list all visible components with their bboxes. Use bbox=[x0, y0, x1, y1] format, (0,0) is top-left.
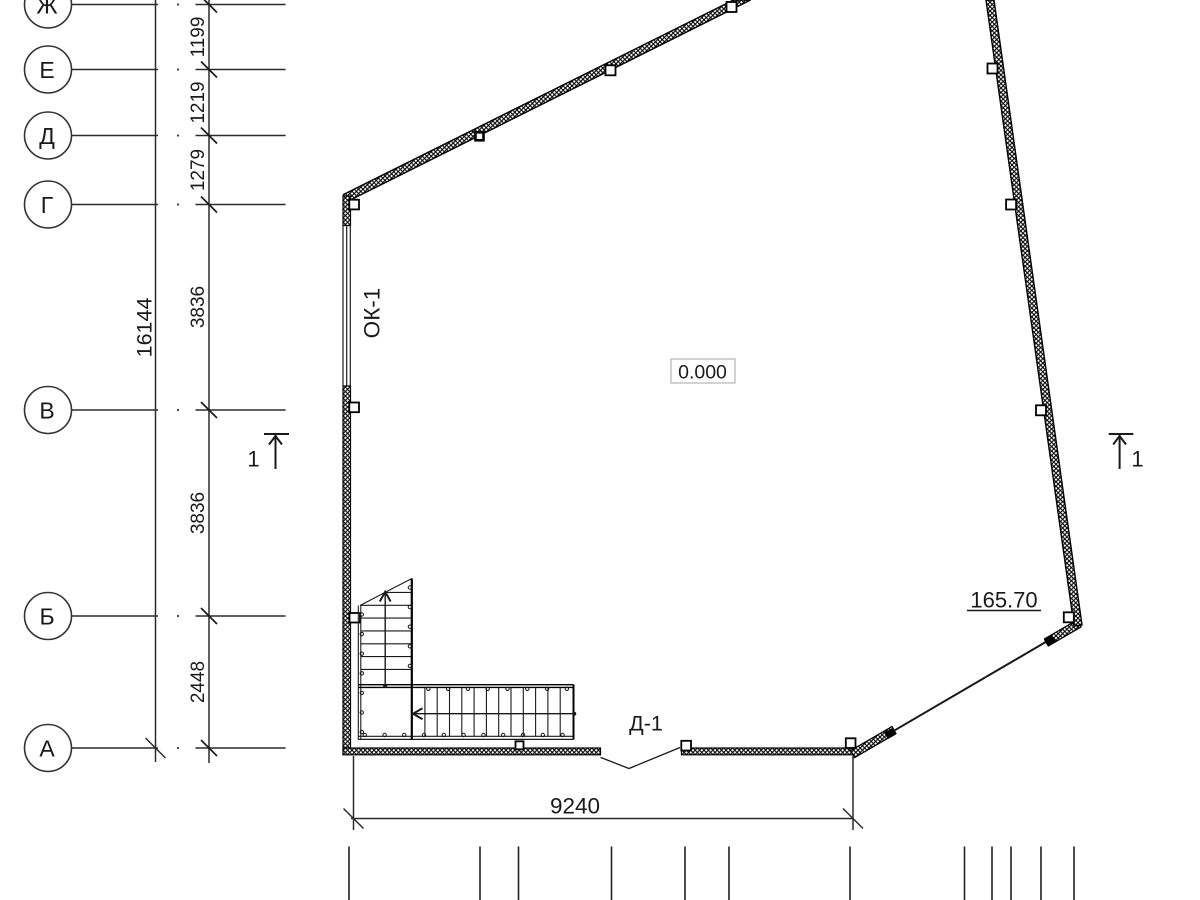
svg-text:3836: 3836 bbox=[188, 286, 209, 328]
svg-text:9240: 9240 bbox=[550, 794, 600, 819]
svg-text:Б: Б bbox=[39, 604, 54, 630]
svg-text:1: 1 bbox=[1131, 447, 1143, 472]
svg-text:1: 1 bbox=[247, 447, 259, 472]
svg-text:Е: Е bbox=[39, 57, 54, 83]
svg-text:16144: 16144 bbox=[133, 298, 157, 358]
svg-text:Ж: Ж bbox=[36, 0, 57, 19]
svg-text:1279: 1279 bbox=[188, 149, 209, 191]
svg-text:Д: Д bbox=[39, 123, 55, 149]
svg-text:Г: Г bbox=[41, 192, 54, 218]
svg-text:1199: 1199 bbox=[188, 17, 209, 58]
svg-text:2448: 2448 bbox=[188, 661, 209, 703]
svg-text:В: В bbox=[39, 398, 54, 424]
svg-text:А: А bbox=[39, 736, 55, 762]
svg-text:0.000: 0.000 bbox=[678, 362, 727, 384]
svg-text:1219: 1219 bbox=[188, 81, 209, 123]
svg-text:165.70: 165.70 bbox=[970, 588, 1037, 613]
svg-text:3836: 3836 bbox=[188, 492, 209, 534]
svg-text:Д-1: Д-1 bbox=[629, 712, 663, 736]
svg-text:ОК-1: ОК-1 bbox=[360, 288, 385, 339]
